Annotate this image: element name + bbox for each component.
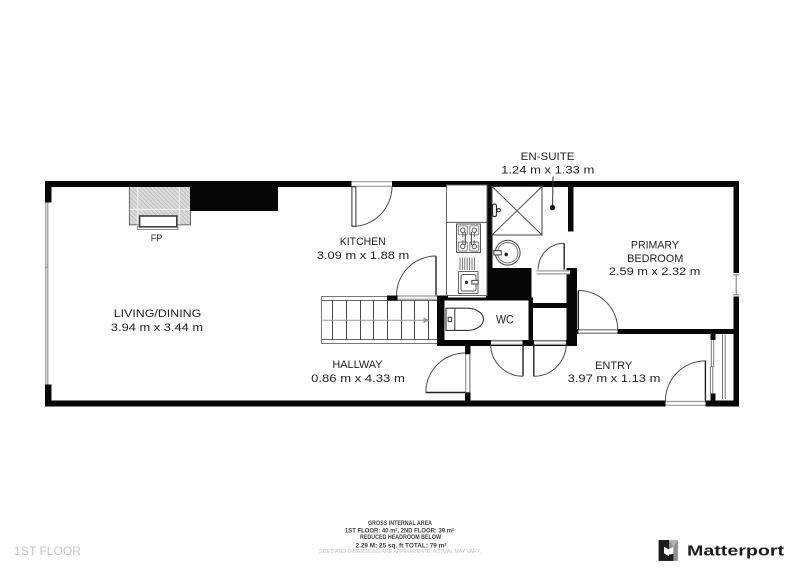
svg-text:1.24 m x 1.33 m: 1.24 m x 1.33 m <box>501 165 594 177</box>
svg-text:SIZES AND DIMENSIONS ARE APPRO: SIZES AND DIMENSIONS ARE APPROXIMATE, AC… <box>319 549 481 555</box>
svg-text:3.09 m x 1.88 m: 3.09 m x 1.88 m <box>317 250 410 262</box>
svg-text:PRIMARY: PRIMARY <box>631 240 680 252</box>
svg-text:KITCHEN: KITCHEN <box>340 236 386 248</box>
svg-text:3.97 m x 1.13 m: 3.97 m x 1.13 m <box>568 373 661 385</box>
svg-text:HALLWAY: HALLWAY <box>332 359 383 371</box>
svg-text:GROSS INTERNAL AREA: GROSS INTERNAL AREA <box>368 521 433 527</box>
svg-text:1ST FLOOR: 40 m², 2ND FLOOR: 3: 1ST FLOOR: 40 m², 2ND FLOOR: 39 m² <box>345 528 454 535</box>
svg-text:3.94 m x 3.44 m: 3.94 m x 3.44 m <box>111 322 203 334</box>
svg-text:LIVING/DINING: LIVING/DINING <box>114 308 202 320</box>
svg-text:1ST FLOOR: 1ST FLOOR <box>14 544 81 558</box>
svg-text:2.59 m x 2.32 m: 2.59 m x 2.32 m <box>609 266 701 278</box>
svg-text:WC: WC <box>496 313 514 327</box>
svg-text:EN-SUITE: EN-SUITE <box>521 151 575 163</box>
svg-text:Matterport: Matterport <box>687 543 784 559</box>
svg-text:FP: FP <box>151 234 163 245</box>
svg-text:REDUCED HEADROOM BELOW: REDUCED HEADROOM BELOW <box>360 535 441 541</box>
svg-text:BEDROOM: BEDROOM <box>627 253 683 265</box>
svg-text:ENTRY: ENTRY <box>595 360 633 372</box>
svg-text:0.86 m x 4.33 m: 0.86 m x 4.33 m <box>311 373 405 385</box>
